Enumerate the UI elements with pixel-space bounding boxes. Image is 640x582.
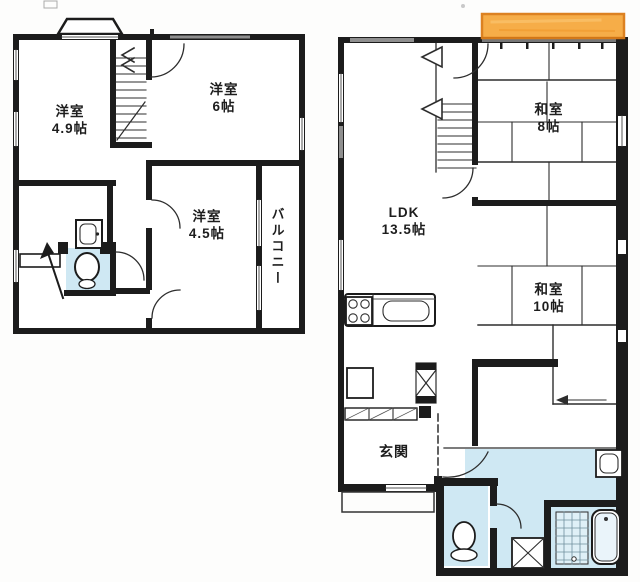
- room-label-washitsu-8: 和室 8帖: [535, 102, 564, 136]
- room-name: 洋室: [52, 104, 88, 121]
- room-label-balcony: バルコニー: [268, 207, 287, 287]
- room-label-yoshitsu-49: 洋室 4.9帖: [52, 104, 88, 138]
- room-size: 13.5帖: [382, 222, 427, 239]
- floor1-plan: [338, 14, 628, 576]
- vanity-basin-icon: [596, 450, 622, 477]
- stove-icon: [346, 297, 372, 325]
- room-size: 4.5帖: [189, 226, 225, 243]
- room-name: 和室: [533, 282, 565, 299]
- porch-step: [342, 492, 434, 512]
- hall-cabinet: [20, 254, 60, 267]
- room-name: 玄関: [379, 443, 409, 461]
- room-label-yoshitsu-45: 洋室 4.5帖: [189, 209, 225, 243]
- floor2-plan: [13, 19, 305, 334]
- toilet-1f-icon: [451, 522, 477, 561]
- room-size: 6帖: [210, 99, 239, 116]
- room-size: 4.9帖: [52, 121, 88, 138]
- room-size: 8帖: [535, 119, 564, 136]
- bathtub-icon: [592, 510, 620, 564]
- drain-icon: [572, 557, 576, 561]
- scan-artifacts: [44, 1, 465, 8]
- room-label-washitsu-10: 和室 10帖: [533, 282, 565, 316]
- room-name: LDK: [382, 205, 427, 222]
- room-name: 洋室: [189, 209, 225, 226]
- washing-machine-icon: [512, 538, 544, 568]
- bath-area: [556, 510, 620, 564]
- room-label-genkan: 玄関: [379, 443, 409, 461]
- shoe-cabinet: [345, 408, 417, 420]
- floor1-footprint-upper: [338, 37, 628, 492]
- floorplan-image: 洋室 4.9帖 洋室 6帖 洋室 4.5帖 バルコニー LDK 13.5帖 和室…: [0, 0, 640, 582]
- toilet-icon: [75, 253, 99, 289]
- room-name: バルコニー: [270, 207, 285, 287]
- room-name: 和室: [535, 102, 564, 119]
- room-label-yoshitsu-6: 洋室 6帖: [210, 82, 239, 116]
- washbasin-icon: [76, 220, 102, 248]
- highlighter-mark: [482, 14, 624, 38]
- room-size: 10帖: [533, 299, 565, 316]
- room-name: 洋室: [210, 82, 239, 99]
- bay-window: [58, 19, 122, 34]
- kitchen-counter: [345, 294, 435, 326]
- pipe-shaft-icon: [416, 363, 436, 403]
- room-label-ldk: LDK 13.5帖: [382, 205, 427, 239]
- refrigerator-space: [347, 368, 373, 398]
- sink-icon: [383, 301, 429, 321]
